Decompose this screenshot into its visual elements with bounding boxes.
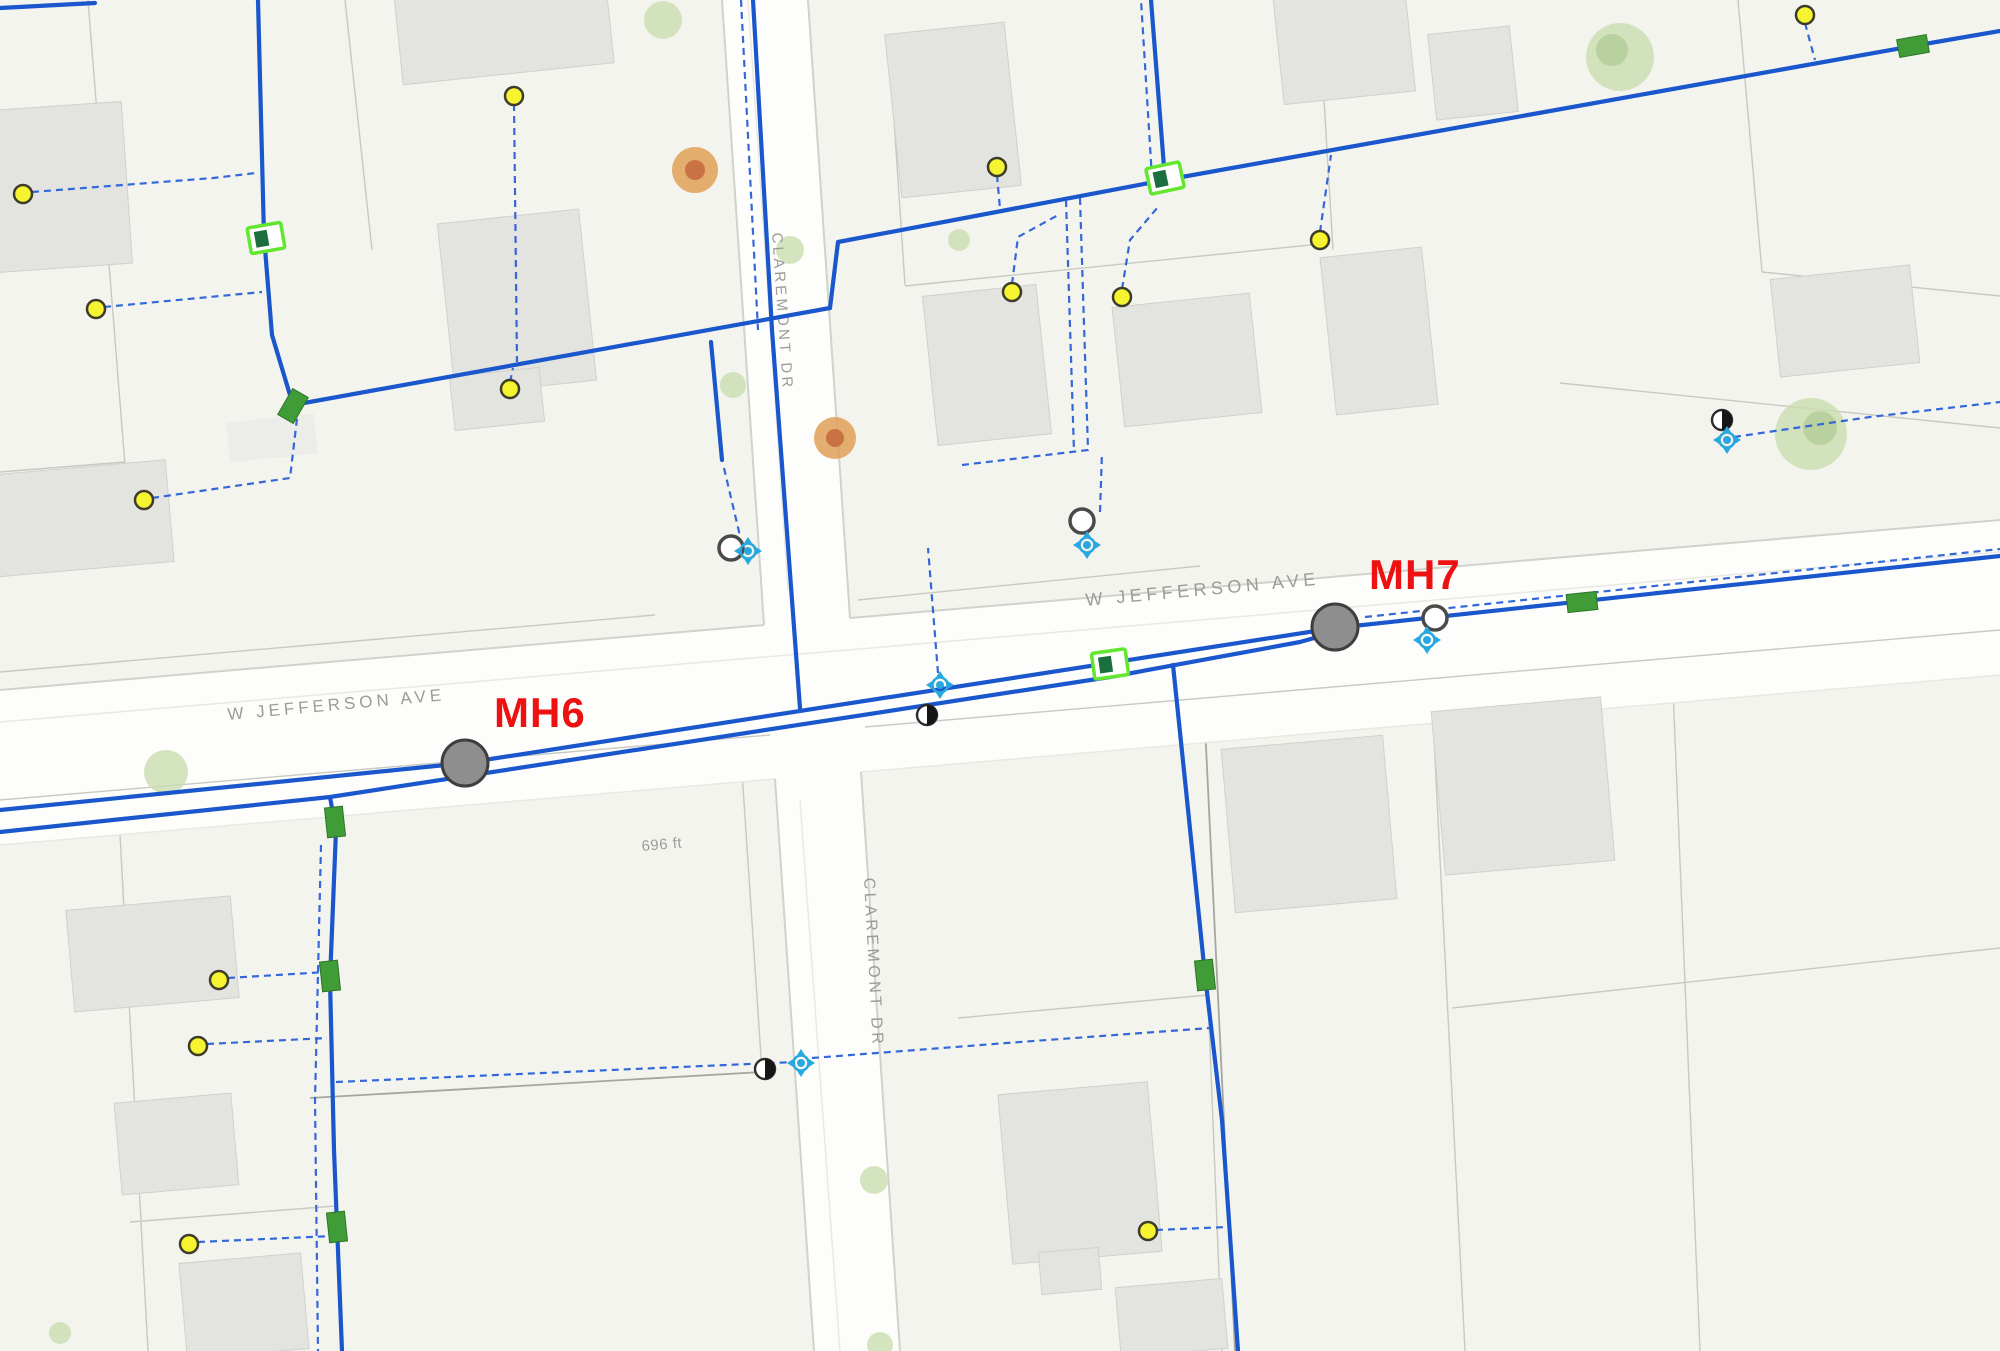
service-point[interactable]	[1311, 231, 1329, 249]
service-point[interactable]	[501, 380, 519, 398]
service-point[interactable]	[1113, 288, 1131, 306]
service-point[interactable]	[1003, 283, 1021, 301]
water-valve[interactable]	[319, 960, 340, 992]
map-canvas[interactable]: W JEFFERSON AVEW JEFFERSON AVECLAREMONT …	[0, 0, 2000, 1351]
cleanout-manhole[interactable]	[1423, 606, 1447, 630]
service-point[interactable]	[505, 87, 523, 105]
service-point[interactable]	[1139, 1222, 1157, 1240]
service-point[interactable]	[1796, 6, 1814, 24]
meter-station[interactable]	[1091, 649, 1128, 679]
manhole-label: MH7	[1369, 551, 1461, 598]
fitting-node[interactable]	[755, 1059, 775, 1079]
water-valve[interactable]	[324, 806, 345, 838]
service-point[interactable]	[210, 971, 228, 989]
cleanout-manhole[interactable]	[1070, 509, 1094, 533]
water-valve[interactable]	[326, 1211, 347, 1243]
meter-station[interactable]	[1146, 162, 1185, 195]
meter-station[interactable]	[247, 222, 285, 254]
service-point[interactable]	[189, 1037, 207, 1055]
water-valve[interactable]	[1194, 959, 1215, 991]
water-valve[interactable]	[1566, 591, 1598, 612]
fitting-node[interactable]	[917, 705, 937, 725]
service-point[interactable]	[180, 1235, 198, 1253]
gis-map-viewport[interactable]: W JEFFERSON AVEW JEFFERSON AVECLAREMONT …	[0, 0, 2000, 1351]
service-point[interactable]	[14, 185, 32, 203]
distance-label: 696 ft	[641, 834, 683, 854]
service-point[interactable]	[988, 158, 1006, 176]
manhole-label: MH6	[494, 689, 586, 736]
fitting-node[interactable]	[1712, 410, 1732, 430]
service-point[interactable]	[135, 491, 153, 509]
service-point[interactable]	[87, 300, 105, 318]
